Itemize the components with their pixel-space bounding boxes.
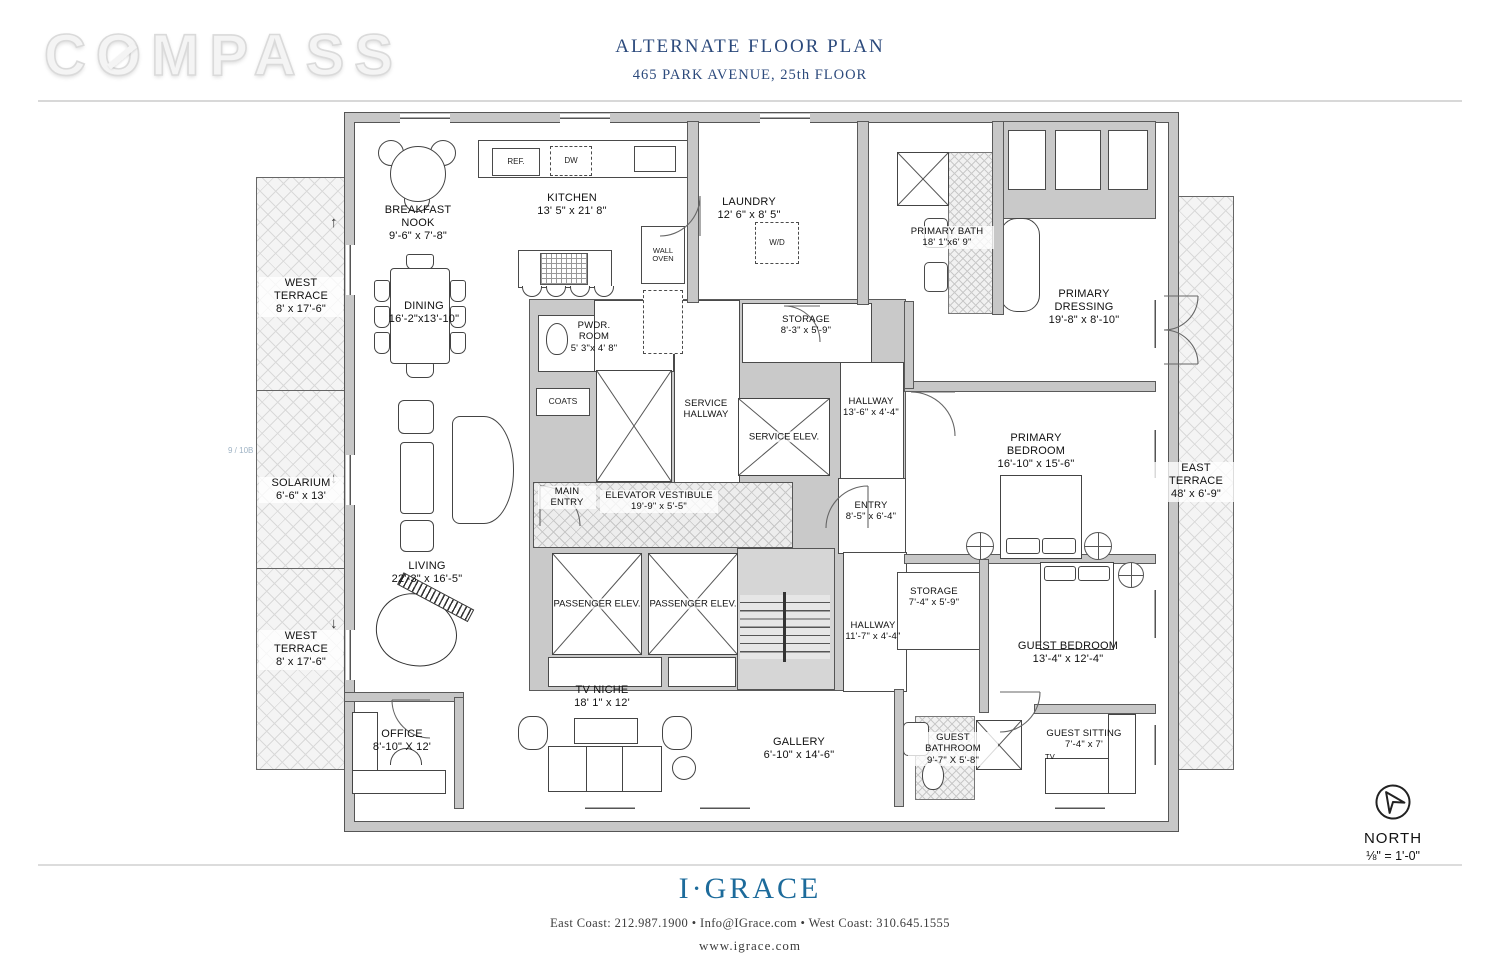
room-label-hallway-south: HALLWAY11'-7" x 4'-4" — [830, 620, 916, 643]
coffee-table — [574, 718, 638, 744]
footer-contact: East Coast: 212.987.1900 • Info@IGrace.c… — [300, 916, 1200, 931]
washer-dryer: W/D — [755, 222, 799, 264]
kitchen-sink — [634, 146, 676, 172]
scale-label: ⅛" = 1'-0" — [1338, 849, 1448, 863]
room-label-office: OFFICE8'-10" X 12' — [358, 728, 446, 754]
window-opening — [560, 114, 610, 123]
footer-website: www.igrace.com — [300, 938, 1200, 954]
room-label-guest-bathroom: GUEST BATHROOM9'-7" X 5'-8" — [908, 732, 998, 766]
room-label-tv-niche: TV NICHE18' 1" x 12' — [552, 684, 652, 710]
room-label-storage-north: STORAGE8'-3" x 5'-9" — [748, 314, 864, 337]
wall — [993, 122, 1003, 314]
pantry-cabinet — [643, 290, 683, 354]
service-elevator-label: SERVICE ELEV. — [739, 431, 829, 442]
shower-stall — [897, 152, 949, 206]
dining-chair — [374, 332, 390, 354]
wall — [905, 302, 913, 388]
room-label-service-hallway: SERVICE HALLWAY — [678, 398, 734, 421]
floor-plan: ↑ ↓ ↓ 9 / 10B — [0, 0, 1500, 971]
armchair — [662, 716, 692, 750]
passenger-elevator-2: PASSENGER ELEV. — [648, 553, 738, 655]
window-opening — [585, 804, 635, 813]
room-label-west-terrace-upper: WEST TERRACE8' x 17'-6" — [259, 277, 343, 317]
window-opening — [346, 245, 355, 295]
hallway-north — [840, 362, 904, 482]
room-label-powder-room: PWDR. ROOM5' 3"x 4' 8" — [562, 320, 626, 354]
room-label-primary-bedroom: PRIMARY BEDROOM16'-10" x 15'-6" — [980, 432, 1092, 472]
north-label: NORTH — [1338, 830, 1448, 847]
wall-oven: WALL OVEN — [641, 226, 685, 284]
wall — [1035, 705, 1155, 713]
footer-divider — [38, 864, 1462, 866]
service-hallway-corridor — [674, 300, 740, 486]
wall — [895, 690, 903, 806]
service-elevator: SERVICE ELEV. — [738, 398, 830, 476]
north-indicator: NORTH ⅛" = 1'-0" — [1338, 782, 1448, 863]
breakfast-table — [390, 146, 446, 202]
closet — [1008, 130, 1046, 190]
room-label-dining: DINING16'-2"x13'-10" — [384, 300, 464, 326]
wall — [858, 122, 868, 304]
room-label-living: LIVING22'-3" x 16'-5" — [378, 560, 476, 586]
office-desk — [352, 770, 446, 794]
room-label-kitchen: KITCHEN13' 5" x 21' 8" — [512, 192, 632, 218]
dining-chair — [450, 332, 466, 354]
wall — [980, 560, 988, 712]
tv-sofa — [548, 746, 662, 792]
terrace-arrow-up-icon: ↑ — [330, 214, 338, 231]
window-opening — [760, 114, 810, 123]
passenger-elevator-label: PASSENGER ELEV. — [649, 598, 737, 609]
tv-cabinet — [548, 657, 662, 687]
dining-chair — [450, 280, 466, 302]
room-label-storage-south: STORAGE7'-4" x 5'-9" — [888, 586, 980, 609]
window-opening — [346, 630, 355, 680]
wall — [455, 698, 463, 808]
dishwasher: DW — [550, 146, 592, 176]
room-label-elevator-vestibule: ELEVATOR VESTIBULE19'-9" x 5'-5" — [600, 490, 718, 513]
pillow — [1044, 566, 1076, 581]
room-label-guest-sitting: GUEST SITTING7'-4" x 7' — [1046, 728, 1122, 751]
room-label-gallery: GALLERY6'-10" x 14'-6" — [752, 736, 846, 762]
window-opening — [700, 804, 750, 813]
window-opening — [1151, 590, 1160, 638]
room-label-entry: ENTRY8'-5" x 6'-4" — [832, 500, 910, 523]
room-label-breakfast-nook: BREAKFAST NOOK9'-6" x 7'-8" — [376, 204, 460, 244]
nightstand-symbol — [1118, 562, 1144, 588]
armchair — [398, 400, 434, 434]
footer: I·GRACE East Coast: 212.987.1900 • Info@… — [300, 872, 1200, 954]
room-label-east-terrace: EAST TERRACE48' x 6'-9" — [1154, 462, 1238, 502]
armchair — [400, 520, 434, 552]
service-shaft — [596, 370, 672, 482]
room-label-primary-dressing: PRIMARY DRESSING19'-8" x 8'-10" — [1028, 288, 1140, 328]
window-opening — [346, 455, 355, 505]
wall — [905, 382, 1155, 391]
pillow — [1042, 538, 1076, 554]
nightstand-symbol — [1084, 532, 1112, 560]
room-label-laundry: LAUNDRY12' 6" x 8' 5" — [700, 196, 798, 222]
nightstand-symbol — [966, 532, 994, 560]
tv-cabinet — [668, 657, 736, 687]
plan-annotation: 9 / 10B — [228, 446, 253, 455]
room-label-main-entry: MAIN ENTRY — [538, 486, 596, 509]
closet — [1055, 130, 1101, 190]
floor-plan-page: COMPASS ALTERNATE FLOOR PLAN 465 PARK AV… — [0, 0, 1500, 971]
tv-label: TV — [1040, 752, 1060, 761]
window-opening — [400, 114, 450, 123]
curved-sofa — [452, 416, 514, 524]
window-opening — [1055, 804, 1105, 813]
passenger-elevator-label: PASSENGER ELEV. — [553, 598, 641, 609]
room-label-west-terrace-lower: WEST TERRACE8' x 17'-6" — [259, 630, 343, 670]
pillow — [1006, 538, 1040, 554]
room-label-solarium: SOLARIUM6'-6" x 13' — [259, 477, 343, 503]
sink-fixture — [924, 262, 948, 292]
closet — [1108, 130, 1148, 190]
passenger-elevator-1: PASSENGER ELEV. — [552, 553, 642, 655]
dining-chair — [374, 280, 390, 302]
igrace-logo: I·GRACE — [300, 872, 1200, 906]
window-opening — [1151, 725, 1160, 765]
coat-closet: COATS — [536, 388, 590, 416]
dining-chair — [406, 362, 434, 378]
north-compass-icon — [1365, 774, 1421, 830]
side-table — [672, 756, 696, 780]
stair-rail — [783, 592, 786, 662]
armchair — [518, 716, 548, 750]
window-opening — [1151, 300, 1160, 348]
cooktop — [540, 253, 588, 285]
sofa — [400, 442, 434, 514]
wall — [688, 122, 698, 302]
room-label-primary-bath: PRIMARY BATH18' 1"x6' 9" — [900, 226, 994, 249]
sectional-sofa — [1108, 714, 1136, 794]
room-label-hallway-north: HALLWAY13'-6" x 4'-4" — [831, 396, 911, 419]
pillow — [1078, 566, 1110, 581]
room-label-guest-bedroom: GUEST BEDROOM13'-4" x 12'-4" — [1012, 640, 1124, 666]
refrigerator: REF. — [492, 148, 540, 176]
